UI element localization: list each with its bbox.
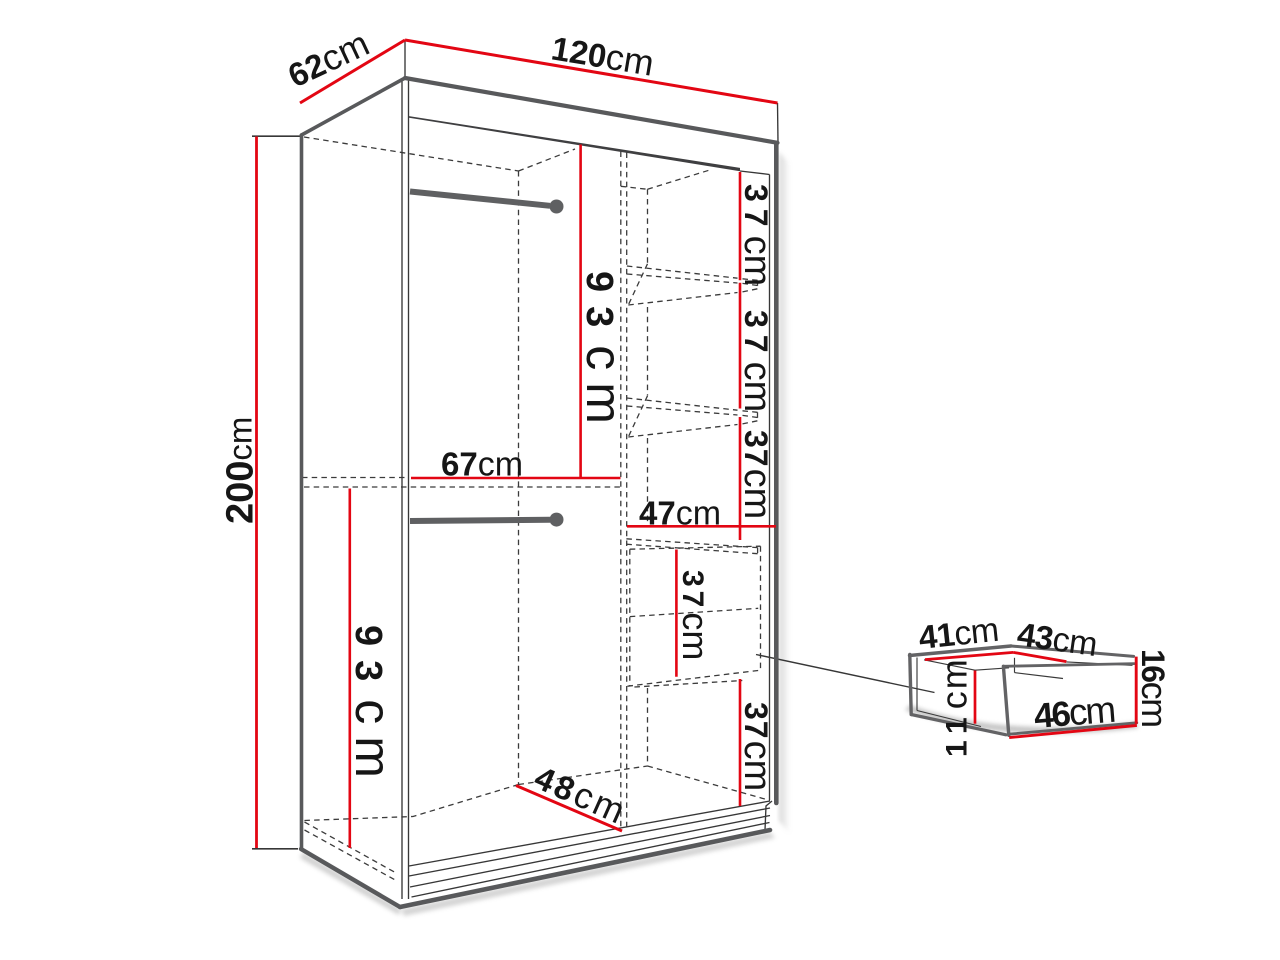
svg-text:200cm: 200cm <box>220 417 262 524</box>
svg-text:37cm: 37cm <box>736 702 778 791</box>
svg-text:46cm: 46cm <box>1032 689 1115 736</box>
svg-text:67cm: 67cm <box>441 446 523 484</box>
svg-text:47cm: 47cm <box>639 495 721 533</box>
svg-text:37cm: 37cm <box>675 570 716 660</box>
svg-text:11cm: 11cm <box>934 657 975 757</box>
svg-text:37cm: 37cm <box>736 310 778 412</box>
svg-text:37cm: 37cm <box>736 184 778 286</box>
svg-text:16cm: 16cm <box>1134 649 1175 727</box>
svg-text:37cm: 37cm <box>736 430 778 519</box>
